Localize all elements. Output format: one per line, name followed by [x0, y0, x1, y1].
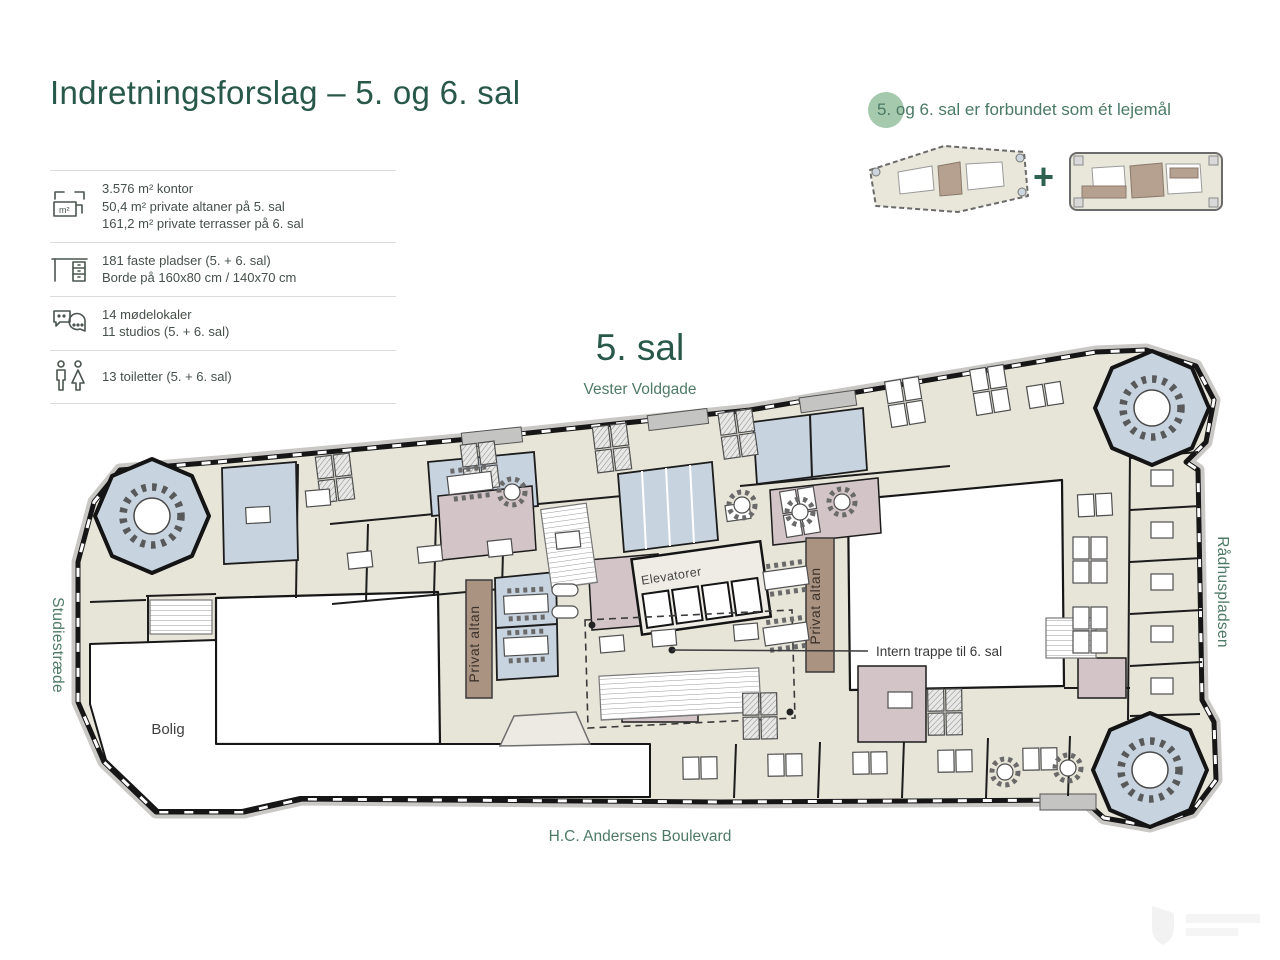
- turret-bottom-right: [1093, 713, 1207, 827]
- elevator-core: [631, 541, 770, 634]
- courtyard-left: [216, 592, 440, 744]
- street-studiestraede: Studiestræde: [49, 597, 66, 693]
- private-balcony-right-label: Privat altan: [807, 567, 823, 644]
- floor-plan: Intern trappe til 6. sal Bolig Elevatore…: [0, 0, 1280, 960]
- watermark: [1152, 906, 1260, 945]
- turret-top-left: [95, 459, 209, 573]
- residence-label: Bolig: [151, 721, 184, 738]
- turret-top-right: [1095, 351, 1209, 465]
- page: Indretningsforslag – 5. og 6. sal m² 3.5…: [0, 0, 1280, 960]
- street-raadhuspladsen: Rådhuspladsen: [1214, 536, 1231, 648]
- internal-stairs-label: Intern trappe til 6. sal: [876, 644, 1002, 659]
- bay-window: [500, 712, 590, 746]
- private-balcony-left-label: Privat altan: [466, 605, 482, 682]
